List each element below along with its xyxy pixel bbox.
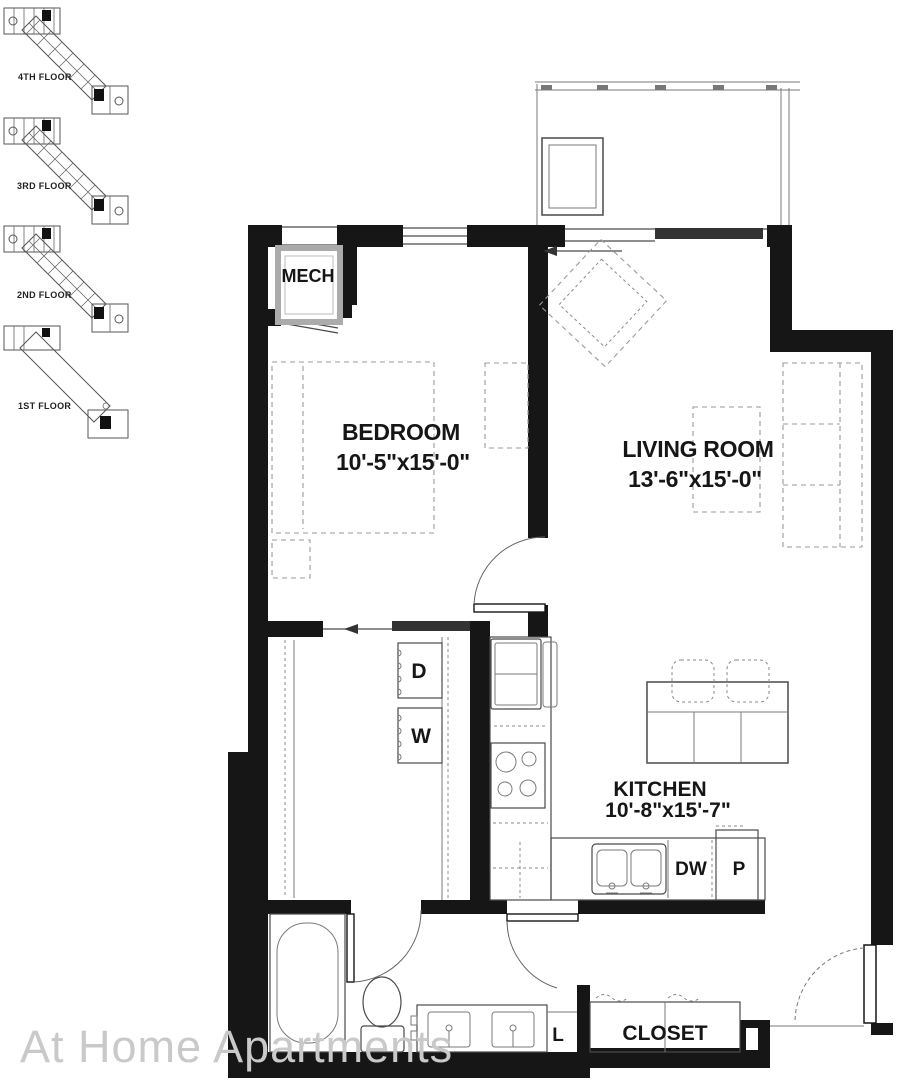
floor-plan-drawing: 4TH FLOOR 3RD FLOOR 2ND FLOOR 1ST FLOOR	[0, 0, 900, 1080]
bedroom-window	[403, 228, 467, 244]
kitchen-dims: 10'-8"x15'-7"	[605, 799, 731, 822]
entry-door	[770, 945, 876, 1026]
closet-label: CLOSET	[622, 1022, 707, 1045]
stool-icons	[672, 660, 769, 702]
condenser-unit-icon	[542, 138, 603, 215]
bedroom-dims: 10'-5"x15'-0"	[336, 449, 470, 475]
bedroom-label: BEDROOM	[342, 419, 460, 445]
kitchen-label: KITCHEN	[613, 778, 706, 801]
washer-label: W	[411, 725, 431, 748]
keyplan-label-1st: 1ST FLOOR	[18, 401, 71, 411]
linen-label: L	[552, 1025, 564, 1046]
mech-label: MECH	[282, 266, 335, 286]
dresser-icon	[485, 363, 528, 448]
mech-vent	[282, 227, 337, 245]
balcony-slider-door	[543, 228, 767, 256]
walls	[228, 225, 893, 1078]
bedroom-pocket-door	[323, 621, 470, 634]
wall-notch	[746, 1028, 758, 1050]
balcony-railing-posts	[541, 85, 777, 90]
keyplan-label-4th: 4TH FLOOR	[18, 72, 72, 82]
stove-icon	[491, 743, 545, 808]
floor-plan-page: 4TH FLOOR 3RD FLOOR 2ND FLOOR 1ST FLOOR	[0, 0, 900, 1080]
dishwasher-label: DW	[675, 859, 707, 880]
dryer-label: D	[411, 660, 426, 683]
keyplan-3rd-floor	[4, 118, 128, 224]
accent-chair-icon	[539, 239, 666, 366]
keyplan-4th-floor	[4, 8, 128, 114]
vestibule-door	[507, 914, 578, 988]
watermark: At Home Apartments	[20, 1021, 453, 1072]
fridge-icon	[491, 639, 557, 709]
sofa-icon	[783, 363, 862, 547]
keyplan-2nd-floor	[4, 226, 128, 332]
keyplan-panel: 4TH FLOOR 3RD FLOOR 2ND FLOOR 1ST FLOOR	[4, 8, 128, 438]
bathroom-door	[347, 910, 421, 982]
keyplan-1st-floor	[4, 326, 128, 438]
kitchen-island-icon	[647, 682, 788, 763]
living-room-dims: 13'-6"x15'-0"	[628, 466, 762, 492]
keyplan-label-2nd: 2ND FLOOR	[17, 290, 72, 300]
balcony	[535, 82, 800, 240]
pantry-label: P	[733, 859, 746, 880]
bedroom-door	[474, 537, 545, 612]
keyplan-label-3rd: 3RD FLOOR	[17, 181, 72, 191]
living-room-label: LIVING ROOM	[622, 436, 773, 462]
kitchen-sink-icon	[592, 844, 666, 894]
